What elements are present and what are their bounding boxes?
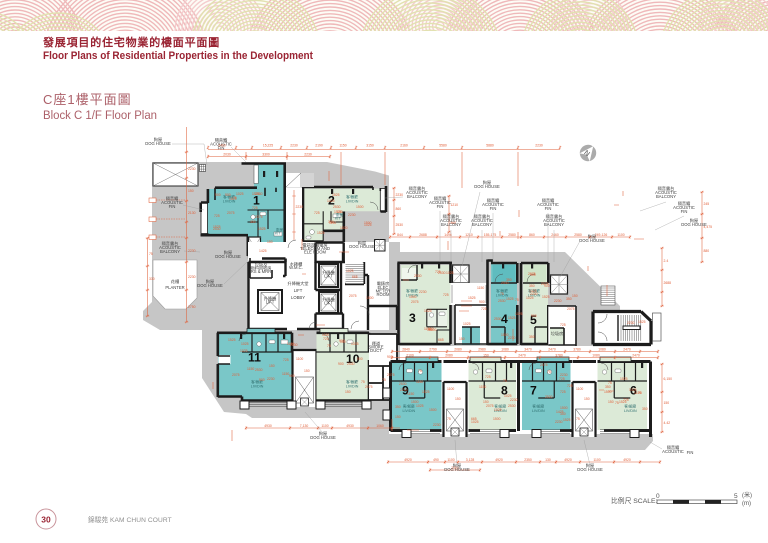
svg-text:BALCONY: BALCONY	[656, 194, 676, 199]
svg-text:1150: 1150	[477, 286, 484, 290]
svg-text:725: 725	[560, 323, 566, 327]
svg-text:75: 75	[149, 252, 153, 256]
svg-text:5580: 5580	[439, 143, 447, 147]
svg-text:1150: 1150	[634, 391, 641, 395]
svg-text:DOG HOUSE: DOG HOUSE	[197, 283, 223, 288]
svg-text:3: 3	[409, 311, 416, 325]
svg-text:1500: 1500	[560, 406, 568, 410]
svg-text:W.M.C.: W.M.C.	[289, 265, 303, 270]
svg-text:2075: 2075	[349, 294, 357, 298]
svg-text:75: 75	[500, 292, 504, 296]
svg-text:3470: 3470	[524, 347, 532, 351]
svg-text:1025: 1025	[515, 312, 523, 316]
svg-text:150: 150	[269, 364, 275, 368]
svg-text:FIN: FIN	[681, 209, 688, 214]
svg-text:4930: 4930	[264, 424, 272, 428]
svg-text:BALCONY: BALCONY	[407, 194, 427, 199]
svg-text:1500: 1500	[604, 390, 612, 394]
svg-text:7,130: 7,130	[300, 424, 309, 428]
svg-text:客/飯廳: 客/飯廳	[346, 379, 358, 384]
svg-text:2460: 2460	[551, 233, 559, 237]
svg-text:150: 150	[483, 353, 489, 357]
svg-text:1425: 1425	[259, 249, 267, 253]
svg-text:2075: 2075	[411, 300, 419, 304]
svg-text:2075: 2075	[232, 373, 240, 377]
svg-text:75: 75	[382, 378, 386, 382]
svg-text:2230: 2230	[554, 299, 562, 303]
svg-text:客/飯廳: 客/飯廳	[406, 288, 418, 293]
svg-text:155-175: 155-175	[484, 233, 497, 237]
svg-text:30: 30	[41, 515, 51, 525]
svg-text:350: 350	[560, 412, 566, 416]
svg-text:LIV/DIN: LIV/DIN	[251, 385, 264, 389]
svg-text:2230: 2230	[290, 143, 298, 147]
svg-text:BALCONY: BALCONY	[472, 222, 492, 227]
svg-text:900: 900	[338, 362, 344, 366]
svg-text:150: 150	[572, 294, 578, 298]
svg-text:比例尺 SCALE:: 比例尺 SCALE:	[611, 496, 658, 505]
svg-text:665: 665	[352, 275, 358, 279]
svg-text:FIN: FIN	[545, 206, 552, 211]
svg-text:150: 150	[340, 340, 346, 344]
svg-text:LIV/DIN: LIV/DIN	[532, 409, 545, 413]
svg-text:1525: 1525	[228, 338, 236, 342]
svg-text:1500: 1500	[501, 333, 509, 337]
svg-text:花槽: 花槽	[171, 278, 180, 285]
svg-text:5880: 5880	[486, 143, 494, 147]
svg-text:1100: 1100	[593, 458, 600, 462]
svg-text:FIN: FIN	[490, 206, 497, 211]
svg-text:350: 350	[605, 385, 611, 389]
svg-text:75: 75	[361, 380, 365, 384]
svg-text:1525: 1525	[638, 320, 646, 324]
svg-text:725: 725	[481, 307, 487, 311]
svg-text:客/飯廳: 客/飯廳	[624, 404, 636, 409]
svg-text:2530: 2530	[333, 205, 341, 209]
svg-text:2230: 2230	[304, 152, 312, 156]
svg-text:1025: 1025	[504, 394, 512, 398]
svg-text:ELE ROOM: ELE ROOM	[304, 250, 327, 255]
svg-text:725: 725	[283, 358, 289, 362]
svg-text:1100: 1100	[617, 233, 624, 237]
svg-text:350: 350	[529, 335, 535, 339]
svg-text:3150: 3150	[366, 143, 374, 147]
svg-text:1525: 1525	[468, 296, 476, 300]
svg-text:1500: 1500	[356, 205, 364, 209]
svg-text:1525: 1525	[252, 192, 260, 196]
svg-text:75: 75	[503, 379, 507, 383]
svg-text:1500: 1500	[493, 417, 501, 421]
svg-text:900: 900	[215, 193, 221, 197]
svg-text:客/飯廳: 客/飯廳	[532, 404, 544, 409]
svg-text:900: 900	[530, 273, 536, 277]
svg-text:150: 150	[395, 415, 401, 419]
svg-text:2530: 2530	[438, 271, 446, 275]
svg-text:2530: 2530	[213, 227, 221, 231]
svg-text:ROOM: ROOM	[376, 292, 390, 297]
svg-text:900: 900	[289, 374, 295, 378]
svg-text:2230: 2230	[433, 423, 441, 427]
svg-text:4: 4	[501, 312, 508, 326]
svg-text:2075: 2075	[567, 307, 575, 311]
svg-text:725: 725	[559, 377, 565, 381]
svg-text:2230: 2230	[510, 398, 518, 402]
svg-text:FIN: FIN	[169, 204, 176, 209]
svg-text:Floor Plans of Residential Pro: Floor Plans of Residential Properties in…	[43, 50, 313, 62]
svg-text:75: 75	[233, 196, 237, 200]
svg-text:1500: 1500	[340, 226, 348, 230]
svg-text:LIV/DIN: LIV/DIN	[624, 409, 637, 413]
svg-text:2230: 2230	[348, 213, 356, 217]
svg-text:150: 150	[608, 400, 614, 404]
svg-text:1525: 1525	[317, 231, 325, 235]
svg-text:DOG HOUSE: DOG HOUSE	[474, 184, 500, 189]
svg-text:1025: 1025	[471, 420, 479, 424]
svg-text:2030: 2030	[223, 152, 231, 156]
svg-text:錦駿苑 KAM CHUN COURT: 錦駿苑 KAM CHUN COURT	[88, 515, 172, 524]
svg-text:1080: 1080	[592, 353, 600, 357]
svg-text:900: 900	[259, 378, 265, 382]
svg-text:150: 150	[267, 240, 273, 244]
svg-text:2980: 2980	[478, 347, 486, 351]
svg-text:1100: 1100	[447, 387, 454, 391]
svg-text:844: 844	[397, 233, 403, 237]
svg-text:350: 350	[642, 407, 648, 411]
svg-text:DOG HOUSE: DOG HOUSE	[577, 467, 603, 472]
svg-text:2230: 2230	[508, 336, 516, 340]
svg-text:330: 330	[149, 277, 155, 281]
svg-text:2530: 2530	[498, 299, 506, 303]
svg-text:2470: 2470	[518, 353, 526, 357]
svg-text:1025: 1025	[241, 342, 249, 346]
svg-text:4930: 4930	[346, 424, 354, 428]
svg-text:1025: 1025	[351, 342, 359, 346]
svg-text:75: 75	[418, 369, 422, 373]
svg-text:LOBBY: LOBBY	[291, 295, 305, 300]
svg-text:2130: 2130	[188, 211, 196, 215]
svg-text:350: 350	[506, 278, 512, 282]
svg-text:245: 245	[704, 202, 710, 206]
svg-text:860: 860	[529, 233, 535, 237]
svg-text:2790: 2790	[429, 347, 437, 351]
svg-text:1025: 1025	[526, 296, 534, 300]
svg-text:2580: 2580	[508, 233, 516, 237]
svg-text:75: 75	[327, 344, 331, 348]
svg-text:1060: 1060	[376, 424, 384, 428]
svg-text:6,150: 6,150	[664, 377, 673, 381]
svg-text:2350: 2350	[524, 458, 532, 462]
svg-text:150: 150	[455, 397, 461, 401]
svg-text:1496: 1496	[444, 233, 452, 237]
svg-text:1525: 1525	[620, 377, 628, 381]
svg-text:1025: 1025	[463, 322, 471, 326]
svg-text:130: 130	[545, 458, 551, 462]
svg-text:客/飯廳: 客/飯廳	[346, 194, 358, 199]
svg-text:2470: 2470	[632, 353, 640, 357]
svg-text:725: 725	[443, 293, 449, 297]
svg-text:2230: 2230	[267, 377, 275, 381]
svg-text:3780: 3780	[573, 347, 581, 351]
svg-text:150: 150	[304, 369, 310, 373]
svg-text:2530: 2530	[545, 395, 553, 399]
svg-text:2688: 2688	[664, 281, 672, 285]
svg-text:4.42: 4.42	[664, 421, 671, 425]
svg-text:2530: 2530	[494, 317, 502, 321]
svg-text:1500: 1500	[429, 408, 437, 412]
svg-text:2230: 2230	[535, 143, 543, 147]
svg-text:1150: 1150	[287, 342, 294, 346]
svg-text:1525: 1525	[424, 309, 432, 313]
svg-text:1025: 1025	[416, 404, 424, 408]
svg-text:BALCONY: BALCONY	[544, 222, 564, 227]
svg-text:2530: 2530	[508, 404, 516, 408]
svg-text:1100: 1100	[321, 424, 328, 428]
svg-text:2075: 2075	[486, 404, 494, 408]
svg-text:860: 860	[396, 207, 402, 211]
svg-text:0: 0	[656, 493, 660, 500]
svg-text:2230: 2230	[188, 249, 196, 253]
svg-text:1100: 1100	[447, 458, 454, 462]
svg-text:KIT: KIT	[335, 217, 341, 221]
svg-text:2470: 2470	[548, 347, 556, 351]
svg-text:4920: 4920	[564, 458, 572, 462]
svg-text:升降機大堂: 升降機大堂	[288, 280, 309, 287]
svg-text:DOG HOUSE: DOG HOUSE	[349, 244, 375, 249]
svg-text:2075: 2075	[365, 385, 373, 389]
svg-text:7: 7	[530, 384, 537, 398]
svg-text:LIV/DIN: LIV/DIN	[402, 409, 415, 413]
svg-text:LIFT: LIFT	[266, 300, 275, 305]
svg-text:900: 900	[479, 300, 485, 304]
svg-text:900: 900	[387, 355, 393, 359]
svg-text:FIN: FIN	[687, 450, 694, 455]
svg-text:1525: 1525	[334, 210, 342, 214]
svg-text:FIN: FIN	[437, 204, 444, 209]
svg-text:4920: 4920	[623, 458, 631, 462]
svg-text:ACOUSTIC: ACOUSTIC	[662, 449, 684, 454]
svg-text:1525: 1525	[619, 400, 627, 404]
svg-text:150: 150	[345, 390, 351, 394]
svg-text:900: 900	[531, 314, 537, 318]
svg-text:2530: 2530	[347, 362, 355, 366]
svg-text:LIFT: LIFT	[294, 288, 303, 293]
svg-text:DUCT: DUCT	[370, 348, 382, 353]
svg-text:PLANTER: PLANTER	[165, 285, 184, 290]
svg-text:75: 75	[515, 298, 519, 302]
svg-text:725: 725	[323, 337, 329, 341]
svg-text:BALCONY: BALCONY	[160, 249, 180, 254]
svg-text:1525: 1525	[506, 297, 514, 301]
svg-text:1025: 1025	[364, 223, 372, 227]
svg-text:1525: 1525	[258, 227, 266, 231]
svg-text:2470: 2470	[623, 347, 631, 351]
svg-text:75: 75	[576, 417, 580, 421]
svg-text:3300: 3300	[262, 152, 270, 156]
svg-text:客/飯廳: 客/飯廳	[403, 404, 415, 409]
svg-text:4920: 4920	[404, 458, 412, 462]
svg-text:1500: 1500	[366, 296, 374, 300]
svg-text:2230: 2230	[419, 290, 427, 294]
svg-text:1080: 1080	[501, 347, 509, 351]
svg-text:1525: 1525	[508, 316, 516, 320]
svg-text:665: 665	[438, 338, 444, 342]
svg-text:(米): (米)	[742, 491, 752, 499]
svg-text:DOG HOUSE: DOG HOUSE	[444, 467, 470, 472]
svg-text:DOG HOUSE: DOG HOUSE	[215, 254, 241, 259]
svg-text:2580: 2580	[574, 233, 582, 237]
svg-text:150: 150	[584, 397, 590, 401]
svg-text:725: 725	[560, 390, 566, 394]
svg-text:Block C 1/F Floor Plan: Block C 1/F Floor Plan	[43, 108, 157, 122]
svg-text:2230: 2230	[296, 205, 304, 209]
svg-text:1080: 1080	[598, 347, 606, 351]
svg-text:15,225: 15,225	[263, 143, 273, 147]
svg-text:LIV/DIN: LIV/DIN	[346, 200, 359, 204]
svg-text:2230: 2230	[560, 373, 568, 377]
svg-text:發展項目的住宅物業的樓面平面圖: 發展項目的住宅物業的樓面平面圖	[42, 35, 220, 49]
svg-text:350: 350	[395, 405, 401, 409]
svg-text:1525: 1525	[332, 193, 340, 197]
svg-text:725: 725	[567, 384, 573, 388]
svg-text:75: 75	[547, 370, 551, 374]
svg-text:350: 350	[328, 220, 334, 224]
svg-text:2075: 2075	[227, 211, 235, 215]
svg-text:垃圾房: 垃圾房	[551, 330, 564, 337]
svg-text:725: 725	[252, 206, 258, 210]
svg-text:1100: 1100	[296, 357, 303, 361]
svg-text:2530: 2530	[414, 274, 422, 278]
svg-text:3,128: 3,128	[466, 458, 475, 462]
svg-text:FIN: FIN	[218, 146, 225, 151]
svg-text:DOG HOUSE: DOG HOUSE	[145, 141, 171, 146]
svg-text:900: 900	[225, 193, 231, 197]
svg-text:1150: 1150	[479, 385, 486, 389]
svg-text:350: 350	[250, 220, 256, 224]
svg-text:2230: 2230	[627, 321, 635, 325]
svg-text:1525: 1525	[563, 418, 571, 422]
svg-text:2530: 2530	[255, 368, 263, 372]
svg-text:249-126: 249-126	[595, 233, 608, 237]
svg-text:1150: 1150	[322, 333, 329, 337]
svg-text:2230: 2230	[396, 193, 404, 197]
svg-text:2.4: 2.4	[664, 259, 669, 263]
svg-text:1150: 1150	[407, 392, 414, 396]
svg-text:BALCONY: BALCONY	[441, 222, 461, 227]
svg-text:1025: 1025	[446, 271, 454, 275]
svg-text:2080: 2080	[454, 347, 462, 351]
svg-text:3780: 3780	[555, 353, 563, 357]
svg-text:1025: 1025	[346, 269, 354, 273]
svg-text:2230: 2230	[555, 420, 563, 424]
svg-text:725: 725	[214, 214, 220, 218]
svg-text:2230: 2230	[188, 167, 196, 171]
svg-text:150: 150	[188, 189, 194, 193]
svg-text:150: 150	[459, 337, 465, 341]
svg-text:2075: 2075	[387, 373, 395, 377]
svg-text:DOG HOUSE: DOG HOUSE	[681, 222, 707, 227]
svg-text:2530: 2530	[399, 382, 407, 386]
svg-text:(m): (m)	[742, 501, 751, 507]
svg-text:1500: 1500	[429, 328, 437, 332]
svg-text:DOG HOUSE: DOG HOUSE	[310, 435, 336, 440]
svg-text:725: 725	[485, 375, 491, 379]
svg-text:LIV/DIN: LIV/DIN	[346, 385, 359, 389]
svg-text:RS & MRR: RS & MRR	[251, 269, 271, 274]
svg-text:150: 150	[664, 401, 670, 405]
svg-text:KIT: KIT	[275, 232, 281, 236]
svg-text:1525: 1525	[422, 390, 430, 394]
svg-text:2100: 2100	[406, 353, 414, 357]
svg-text:2840: 2840	[402, 347, 410, 351]
svg-text:880: 880	[704, 249, 710, 253]
svg-text:1500: 1500	[409, 295, 417, 299]
svg-text:1100: 1100	[576, 387, 583, 391]
svg-text:1025: 1025	[236, 192, 244, 196]
svg-text:C座1樓平面圖: C座1樓平面圖	[43, 92, 132, 107]
svg-text:1210: 1210	[465, 233, 473, 237]
svg-text:725: 725	[314, 211, 320, 215]
svg-text:1210: 1210	[451, 203, 459, 207]
svg-text:1150: 1150	[416, 380, 423, 384]
svg-text:2230: 2230	[188, 275, 196, 279]
svg-text:2080: 2080	[445, 353, 453, 357]
svg-text:1025: 1025	[494, 408, 502, 412]
svg-text:LIFT: LIFT	[324, 274, 333, 279]
svg-text:11: 11	[248, 351, 261, 365]
svg-text:1025: 1025	[240, 349, 248, 353]
svg-text:1525: 1525	[542, 295, 550, 299]
svg-text:1425: 1425	[327, 199, 335, 203]
svg-text:2530: 2530	[396, 223, 404, 227]
svg-text:2075: 2075	[540, 363, 548, 367]
svg-text:2688: 2688	[419, 233, 427, 237]
svg-text:LIFT: LIFT	[324, 301, 333, 306]
svg-text:900: 900	[357, 357, 363, 361]
svg-text:2160: 2160	[400, 143, 408, 147]
svg-text:75: 75	[447, 417, 451, 421]
svg-text:2750: 2750	[188, 305, 196, 309]
svg-text:1150: 1150	[247, 367, 254, 371]
svg-text:DOG HOUSE: DOG HOUSE	[579, 238, 605, 243]
svg-text:5: 5	[734, 493, 738, 500]
svg-text:2075: 2075	[255, 215, 263, 219]
svg-text:490: 490	[433, 458, 439, 462]
svg-text:1150: 1150	[339, 143, 346, 147]
svg-text:350: 350	[529, 284, 535, 288]
svg-text:2190: 2190	[315, 143, 323, 147]
svg-text:4920: 4920	[495, 458, 503, 462]
svg-text:350: 350	[566, 297, 572, 301]
svg-text:900: 900	[544, 284, 550, 288]
